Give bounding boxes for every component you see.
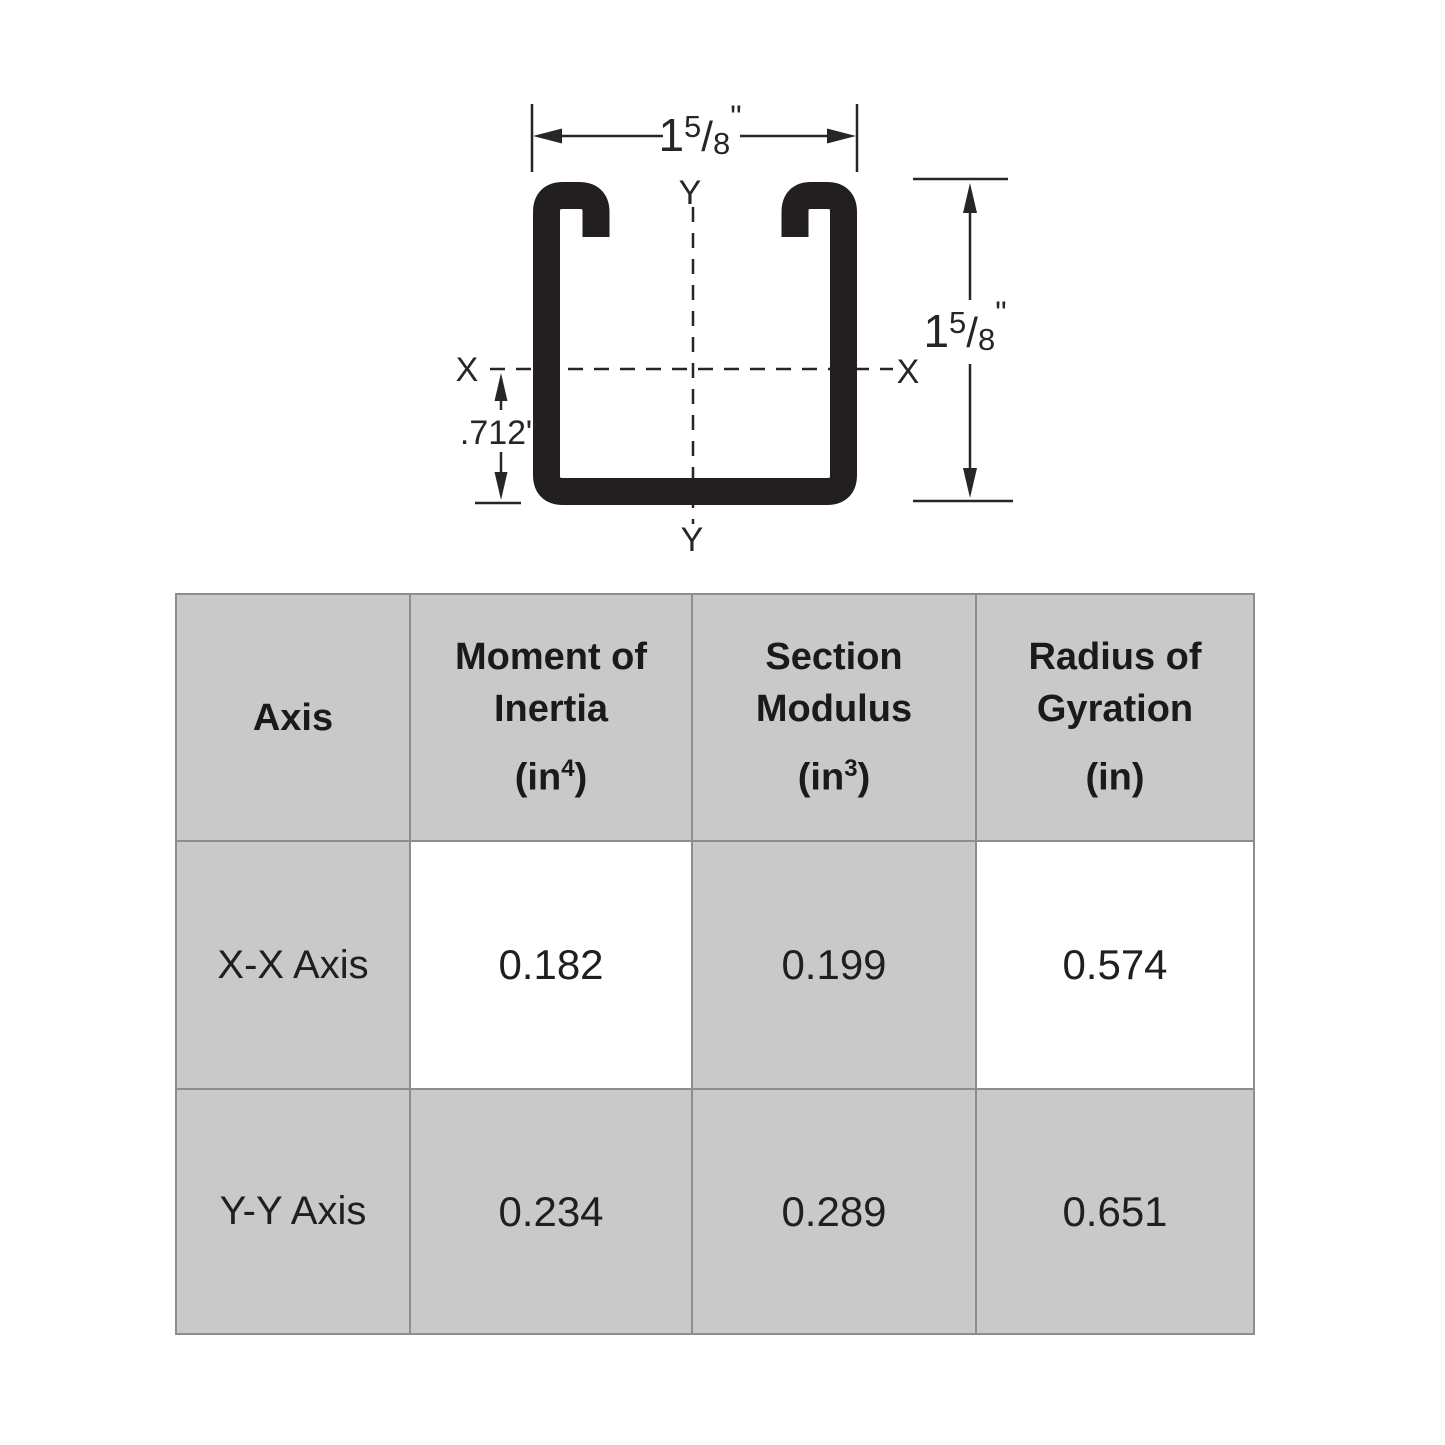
cell-xx-section-modulus: 0.199 xyxy=(693,842,975,1088)
cell-yy-radius-of-gyration: 0.651 xyxy=(977,1090,1253,1333)
page: 15/8" 15/8" .712" X X Y Y xyxy=(0,0,1445,1445)
centroid-dimension-text: .712" xyxy=(460,414,538,452)
width-dimension: 15/8" xyxy=(532,99,857,172)
cell-yy-section-modulus: 0.289 xyxy=(693,1090,975,1333)
channel-cross-section xyxy=(547,196,844,492)
y-axis-label-top: Y xyxy=(679,174,702,212)
arrowhead-up-icon xyxy=(495,373,508,401)
header-unit: (in4) xyxy=(515,743,587,804)
header-label: Radius of Gyration xyxy=(977,631,1253,735)
header-radius-of-gyration: Radius of Gyration (in) xyxy=(977,595,1253,840)
arrowhead-left-icon xyxy=(533,129,562,144)
arrowhead-down-icon xyxy=(495,472,508,500)
header-label: Section Modulus xyxy=(693,631,975,735)
row-label-yy-axis: Y-Y Axis xyxy=(177,1090,409,1333)
x-axis-label-right: X xyxy=(897,353,920,391)
row-label-xx-axis: X-X Axis xyxy=(177,842,409,1088)
cell-yy-moment-of-inertia: 0.234 xyxy=(411,1090,691,1333)
header-axis: Axis xyxy=(177,595,409,840)
arrowhead-up-icon xyxy=(963,183,977,213)
height-dimension: 15/8" xyxy=(913,179,1013,501)
arrowhead-right-icon xyxy=(827,129,856,144)
section-properties-table: Axis Moment of Inertia (in4) Section Mod… xyxy=(175,593,1255,1335)
centroid-dimension: .712" xyxy=(460,373,538,503)
arrowhead-down-icon xyxy=(963,468,977,498)
header-unit: (in3) xyxy=(798,743,870,804)
cell-xx-radius-of-gyration: 0.574 xyxy=(977,842,1253,1088)
header-label: Axis xyxy=(253,692,333,744)
header-moment-of-inertia: Moment of Inertia (in4) xyxy=(411,595,691,840)
y-axis-label-bottom: Y xyxy=(681,521,704,559)
cell-xx-moment-of-inertia: 0.182 xyxy=(411,842,691,1088)
x-axis-label-left: X xyxy=(456,351,479,389)
header-unit: (in) xyxy=(1085,743,1144,804)
header-section-modulus: Section Modulus (in3) xyxy=(693,595,975,840)
header-label: Moment of Inertia xyxy=(411,631,691,735)
strut-channel-diagram: 15/8" 15/8" .712" X X Y Y xyxy=(0,0,1445,580)
width-dimension-text: 15/8" xyxy=(658,99,741,161)
height-dimension-text: 15/8" xyxy=(923,295,1006,357)
